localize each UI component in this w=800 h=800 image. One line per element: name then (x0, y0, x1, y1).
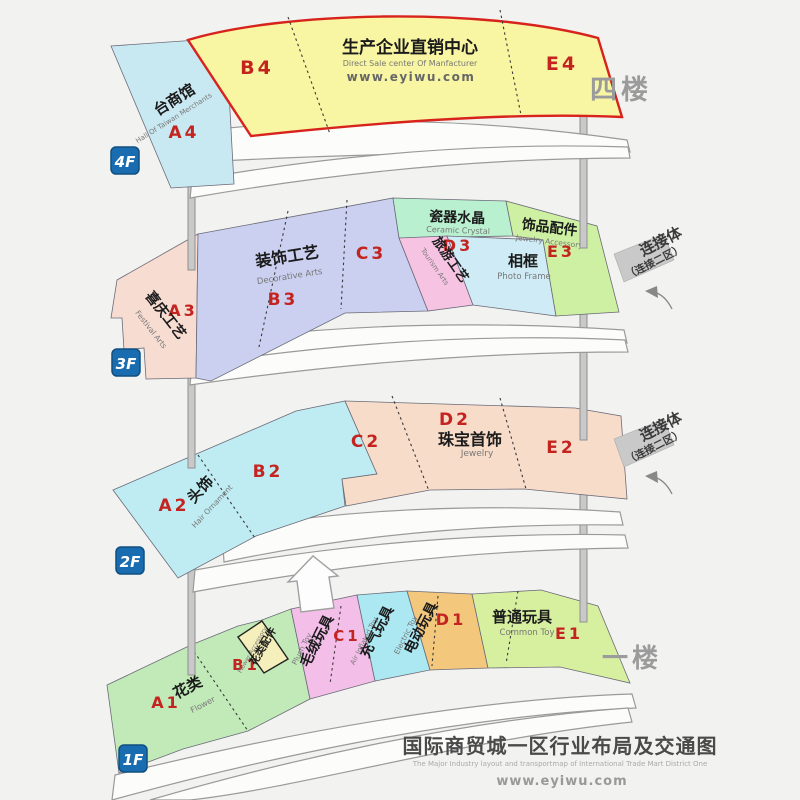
map-title-cn: 国际商贸城一区行业布局及交通图 (403, 734, 718, 758)
label-jewelry-cn: 珠宝首饰 (438, 430, 502, 449)
label-photo-frame-cn: 相框 (508, 252, 538, 270)
label-c3: C3 (356, 244, 386, 264)
label-jewelry-en: Jewelry (460, 449, 494, 459)
label-e2: E2 (546, 438, 575, 458)
label-c1: C1 (333, 627, 360, 645)
pillar-right-3f-2f (580, 305, 587, 440)
label-b4: B4 (240, 57, 274, 79)
label-direct-sale-center-cn: 生产企业直销中心 (342, 37, 478, 58)
label-e1: E1 (555, 624, 583, 643)
badge-4f-label: 4F (114, 153, 136, 171)
label-c2: C2 (351, 432, 381, 452)
label-common-toy-cn: 普通玩具 (492, 608, 552, 626)
label-e4: E4 (546, 53, 578, 75)
label-direct-sale-center-en: Direct Sale center Of Manfacturer (343, 59, 478, 68)
badge-3f-label: 3F (116, 355, 137, 373)
label-e3: E3 (547, 242, 575, 261)
label-ceramic-crystal-cn: 瓷器水晶 (429, 208, 486, 227)
side-label-first-floor: 一楼 (602, 644, 662, 674)
label-d2: D2 (439, 410, 471, 430)
label-b2: B2 (253, 462, 284, 482)
label-b3: B3 (268, 290, 299, 310)
map-title-en: The Major Industry layout and transportm… (412, 760, 708, 768)
map-url: www.eyiwu.com (496, 774, 627, 789)
badge-1f-label: 1F (123, 751, 144, 769)
pillar-right-4f-3f (580, 112, 587, 248)
label-a2: A2 (159, 496, 190, 516)
label-d1: D1 (436, 610, 466, 629)
floor-layout-map: A1 花类 Flower B1 花类配件 Flower Accessory 毛绒… (0, 0, 800, 800)
badge-2f-label: 2F (120, 553, 141, 571)
side-label-fourth-floor: 四楼 (590, 75, 652, 106)
label-a4: A4 (169, 123, 200, 143)
label-common-toy-en: Common Toy (500, 628, 555, 638)
label-center-url: www.eyiwu.com (347, 70, 476, 84)
label-photo-frame-en: Photo Frame (497, 272, 550, 282)
floor-map-svg: A1 花类 Flower B1 花类配件 Flower Accessory 毛绒… (0, 0, 800, 800)
